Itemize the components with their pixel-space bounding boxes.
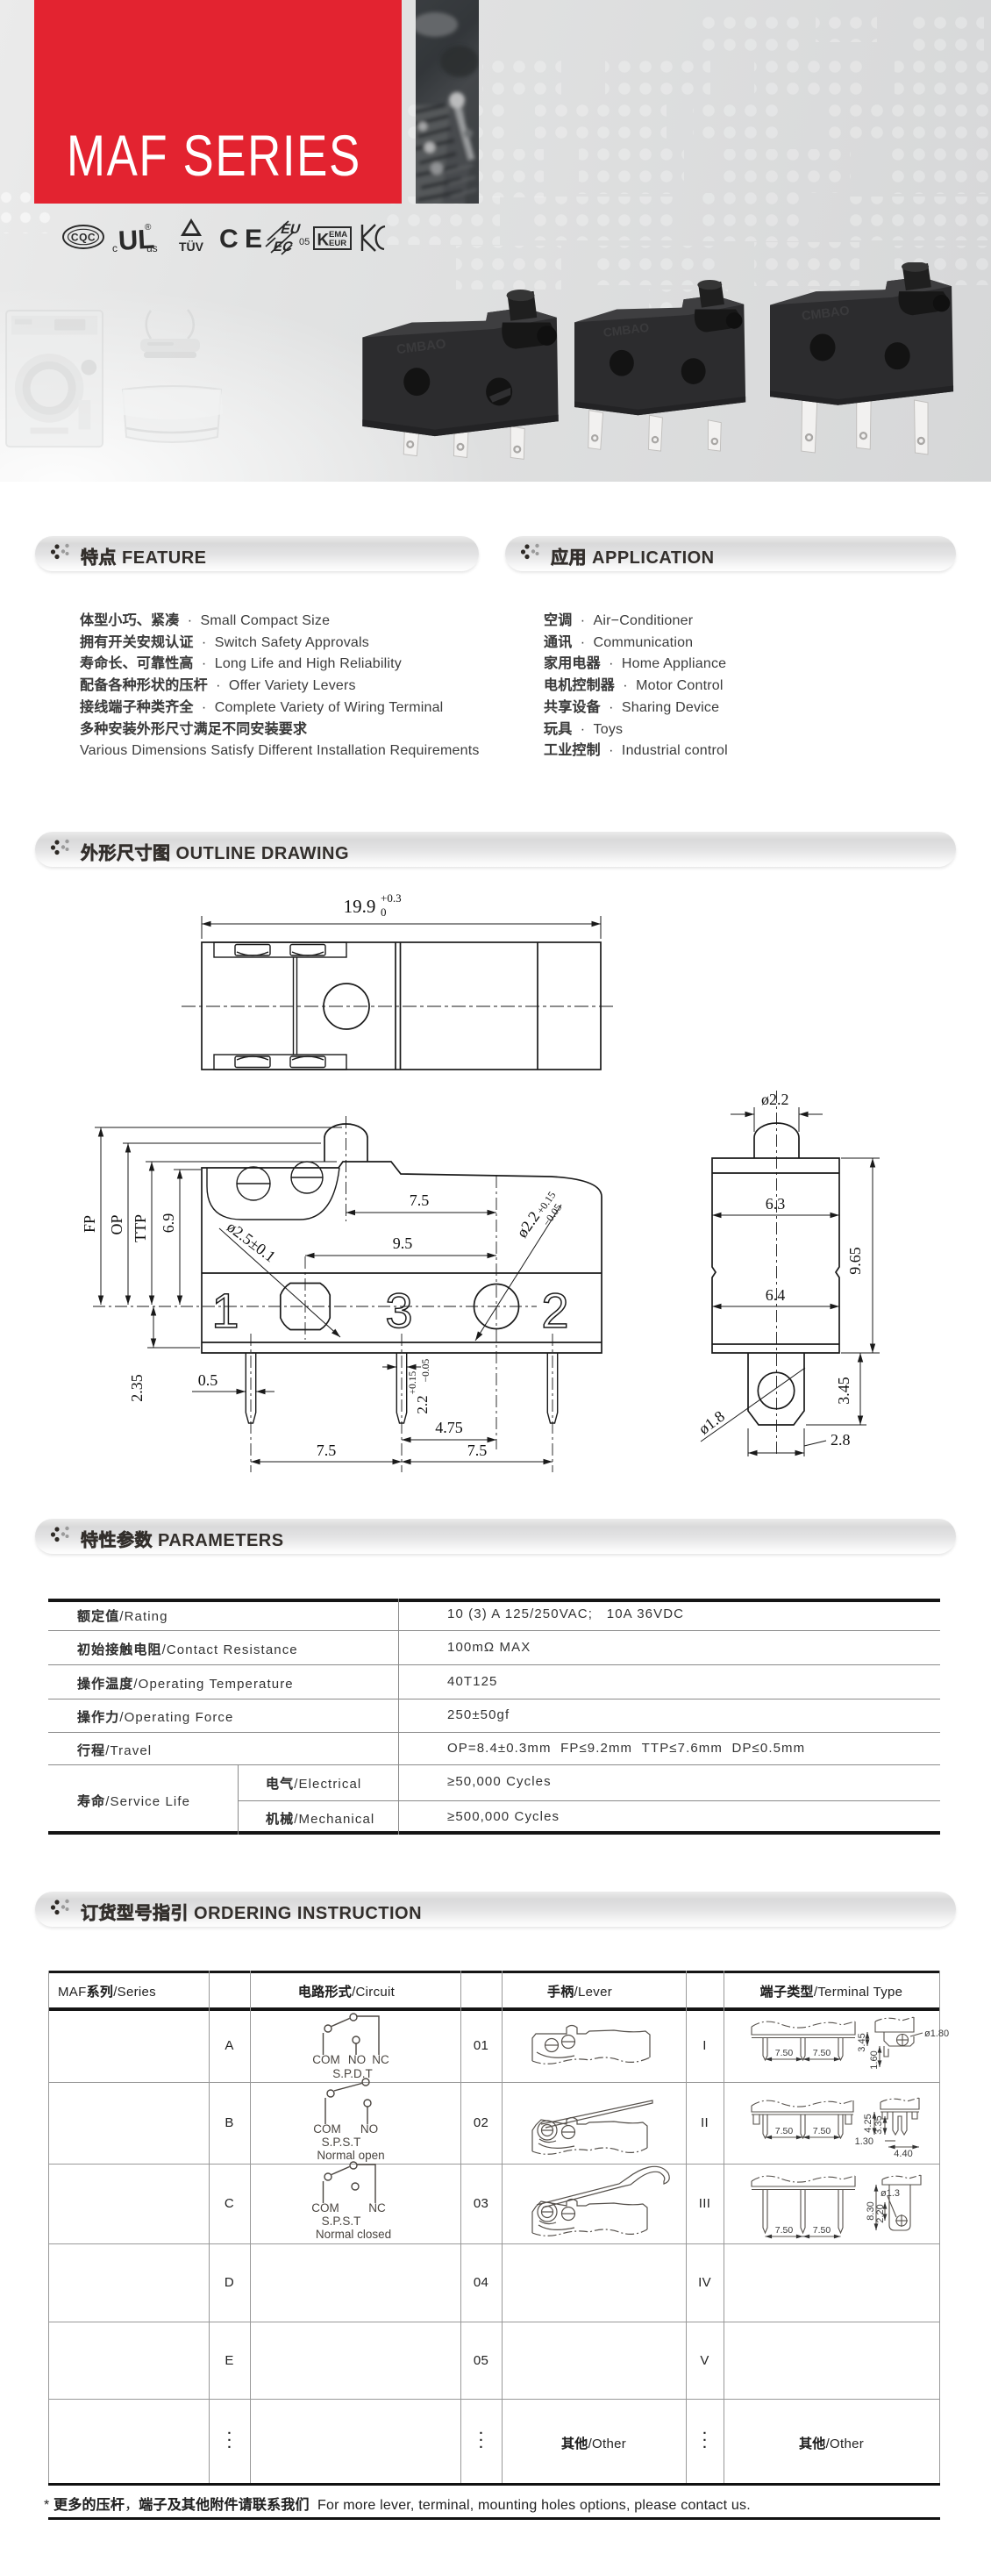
- svg-text:+0.3: +0.3: [381, 891, 402, 905]
- svg-text:ø2.2: ø2.2: [761, 1091, 789, 1108]
- svg-text:CQC: CQC: [71, 232, 96, 244]
- svg-text:S.P.S.T: S.P.S.T: [322, 2215, 361, 2228]
- svg-text:c: c: [112, 242, 118, 254]
- svg-text:Normal open: Normal open: [317, 2149, 384, 2162]
- svg-text:+0.15: +0.15: [408, 1370, 418, 1394]
- svg-text:COM: COM: [312, 2053, 340, 2066]
- svg-text:7.50: 7.50: [775, 2225, 794, 2236]
- svg-text:4.25: 4.25: [863, 2114, 873, 2132]
- svg-text:ø2.5±0.1: ø2.5±0.1: [224, 1218, 279, 1265]
- svg-text:1: 1: [211, 1283, 239, 1338]
- svg-text:0.5: 0.5: [198, 1371, 218, 1389]
- svg-text:7.5: 7.5: [317, 1442, 337, 1459]
- svg-text:7.5: 7.5: [410, 1191, 430, 1209]
- svg-text:6.3: 6.3: [766, 1195, 786, 1213]
- svg-text:TTP: TTP: [132, 1214, 149, 1242]
- svg-text:COM: COM: [313, 2122, 341, 2136]
- svg-text:EUR: EUR: [329, 239, 346, 248]
- svg-text:19.9: 19.9: [344, 896, 376, 917]
- svg-text:2.20: 2.20: [875, 2204, 886, 2222]
- svg-text:ø1.8: ø1.8: [695, 1407, 728, 1438]
- svg-text:ø1.3: ø1.3: [880, 2188, 900, 2199]
- svg-text:3.35: 3.35: [873, 2115, 884, 2134]
- svg-text:4.40: 4.40: [894, 2149, 912, 2159]
- svg-text:4.75: 4.75: [435, 1419, 463, 1436]
- svg-text:0: 0: [381, 905, 387, 919]
- svg-text:7.50: 7.50: [813, 2126, 831, 2136]
- svg-text:3: 3: [385, 1283, 412, 1338]
- svg-text:NC: NC: [372, 2053, 389, 2066]
- svg-text:ø1.80: ø1.80: [924, 2029, 949, 2039]
- svg-text:7.50: 7.50: [813, 2225, 831, 2236]
- svg-text:NO: NO: [360, 2122, 378, 2136]
- svg-text:3.45: 3.45: [835, 1377, 852, 1405]
- svg-text:6.9: 6.9: [160, 1213, 177, 1234]
- svg-text:2.35: 2.35: [128, 1374, 146, 1402]
- svg-text:C: C: [219, 225, 239, 254]
- svg-text:2.2: 2.2: [414, 1395, 431, 1413]
- svg-text:NC: NC: [368, 2201, 386, 2215]
- svg-text:®: ®: [145, 223, 152, 233]
- svg-text:E: E: [245, 225, 262, 254]
- svg-text:1.60: 1.60: [869, 2050, 880, 2069]
- svg-text:7.50: 7.50: [813, 2048, 831, 2058]
- svg-text:COM: COM: [311, 2201, 339, 2215]
- svg-text:TÜV: TÜV: [179, 240, 204, 254]
- svg-text:9.65: 9.65: [846, 1247, 864, 1275]
- svg-text:S.P.S.T: S.P.S.T: [322, 2136, 361, 2149]
- svg-text:05: 05: [299, 237, 310, 247]
- svg-text:6.4: 6.4: [766, 1286, 786, 1304]
- svg-text:7.50: 7.50: [775, 2126, 794, 2136]
- svg-text:K: K: [317, 232, 330, 250]
- svg-text:NO: NO: [348, 2053, 366, 2066]
- svg-text:2.8: 2.8: [831, 1431, 851, 1449]
- svg-text:−0.05: −0.05: [421, 1358, 431, 1382]
- svg-text:9.5: 9.5: [393, 1234, 413, 1252]
- svg-text:7.50: 7.50: [775, 2048, 794, 2058]
- svg-text:OP: OP: [108, 1214, 125, 1234]
- svg-text:2: 2: [541, 1283, 568, 1338]
- svg-text:1.30: 1.30: [855, 2136, 873, 2147]
- svg-text:7.5: 7.5: [467, 1442, 488, 1459]
- svg-text:3.45: 3.45: [857, 2033, 867, 2051]
- svg-text:FP: FP: [81, 1215, 98, 1233]
- svg-text:Normal closed: Normal closed: [316, 2228, 391, 2241]
